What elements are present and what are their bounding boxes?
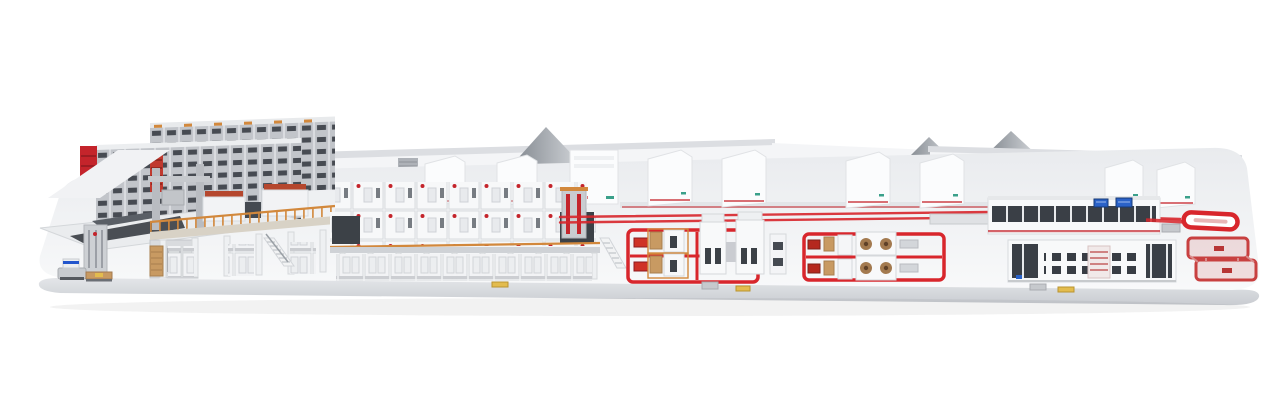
factory-render xyxy=(0,0,1280,405)
glass-line-roof xyxy=(988,196,1160,200)
pallet-load xyxy=(95,273,103,277)
glass-band xyxy=(992,206,1156,222)
under-deck-cabinet-1 xyxy=(168,246,194,277)
outfeed-cart xyxy=(1162,224,1180,232)
red-post-tower xyxy=(560,187,588,238)
pallet-base xyxy=(86,279,112,282)
palletizer-red-module xyxy=(1088,246,1110,278)
gantry-trolley xyxy=(162,190,184,205)
platform-shadow xyxy=(50,298,1250,316)
yellow-pallet-2 xyxy=(736,286,750,291)
palletizer-blue-dot xyxy=(1016,275,1022,279)
mid-row-dark-end-left xyxy=(332,216,360,244)
yellow-pallet-1 xyxy=(492,282,508,287)
tower-machine-1 xyxy=(700,214,726,274)
palletizer-glass-right xyxy=(1146,244,1172,278)
splicer-red-dot xyxy=(93,232,97,236)
loop-detail-block-1 xyxy=(1214,246,1224,251)
splicer-tower xyxy=(84,225,107,273)
mid-module-row xyxy=(330,212,596,246)
floor-cart xyxy=(702,282,718,289)
wood-rack xyxy=(150,246,163,276)
racetrack-arm xyxy=(1146,220,1186,222)
ground-cabinet-row xyxy=(336,254,592,281)
transport-pallet xyxy=(86,272,112,282)
infeed-conveyor xyxy=(930,214,990,224)
loop-detail-block-2 xyxy=(1222,268,1232,273)
palletizer-base xyxy=(1008,280,1176,282)
floor-unit xyxy=(1030,284,1046,290)
outfeed-stub-2 xyxy=(900,264,918,272)
agv-blue-stripe xyxy=(63,261,79,264)
factory-render-stage xyxy=(0,0,1280,405)
feed-frame-unit xyxy=(770,234,786,274)
screen-1 xyxy=(1094,199,1108,207)
tower-machine-2 xyxy=(736,212,764,274)
agv-chassis xyxy=(60,277,84,280)
palletizer-glass-left xyxy=(1012,244,1038,278)
dry-end-line xyxy=(330,182,626,287)
under-deck-cabinet-3 xyxy=(290,242,316,274)
yellow-pallet-3 xyxy=(1058,287,1074,292)
dry-end-deck xyxy=(330,247,600,253)
gantry-beam xyxy=(148,176,210,182)
outfeed-stub-1 xyxy=(900,240,918,248)
loop-conveyor xyxy=(1188,238,1256,280)
tower-connector xyxy=(726,242,736,262)
under-deck-cabinet-2 xyxy=(228,244,254,276)
upper-module-row xyxy=(335,182,587,212)
glass-line-red-trim xyxy=(988,230,1160,232)
